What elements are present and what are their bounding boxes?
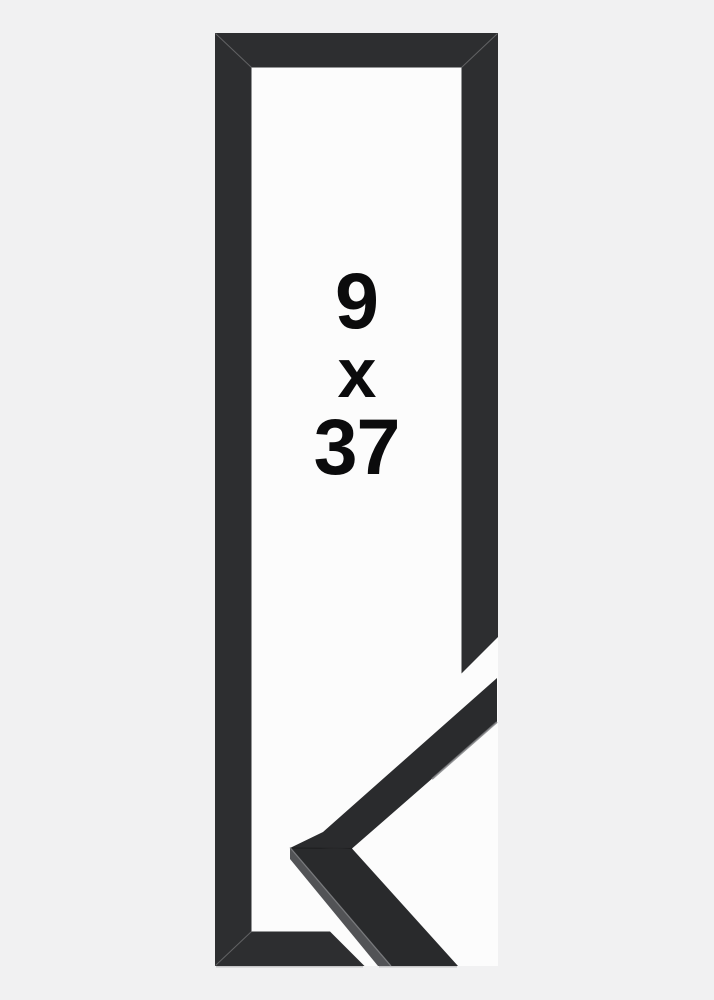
frame-product-image: 9 x 37 (0, 0, 714, 1000)
corner-detail-miter-seam (290, 848, 352, 849)
size-width: 9 (251, 264, 462, 337)
frame-graphic (0, 0, 714, 1000)
size-label: 9 x 37 (251, 264, 462, 483)
size-separator: x (251, 337, 462, 410)
size-height: 37 (251, 410, 462, 483)
frame-opening (252, 68, 462, 932)
